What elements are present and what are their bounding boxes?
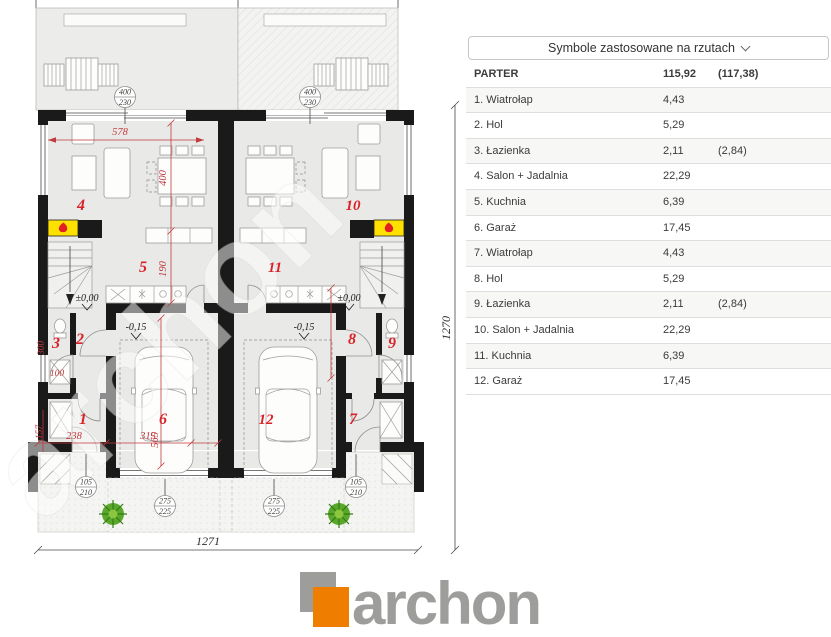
svg-text:400: 400	[119, 88, 131, 97]
room-area: 5,29	[663, 267, 718, 293]
room-name: 10. Salon + Jadalnia	[466, 318, 663, 344]
legend-row: 8. Hol 5,29	[466, 267, 831, 293]
room-area-alt: (2,84)	[718, 292, 831, 318]
legend-row: 2. Hol 5,29	[466, 113, 831, 139]
room-area: 22,29	[663, 318, 718, 344]
svg-text:578: 578	[112, 127, 129, 138]
room-area-alt	[718, 318, 831, 344]
room-name: 11. Kuchnia	[466, 344, 663, 370]
room-name: 9. Łazienka	[466, 292, 663, 318]
legend-row: 4. Salon + Jadalnia 22,29	[466, 164, 831, 190]
svg-text:157: 157	[35, 424, 45, 440]
floor-plan: archon 578 400 190 300 100 157 238 315 5…	[8, 0, 474, 565]
room-area-alt: (2,84)	[718, 139, 831, 165]
svg-text:-0,15: -0,15	[294, 322, 315, 333]
room-area-alt	[718, 369, 831, 395]
room-number-12: 12	[259, 412, 275, 428]
room-number-9: 9	[388, 335, 396, 352]
room-area: 4,43	[663, 241, 718, 267]
legend-rows: 1. Wiatrołap 4,43 2. Hol 5,29 3. Łazienk…	[466, 88, 831, 395]
area-legend: Symbole zastosowane na rzutach PARTER 11…	[466, 0, 831, 420]
chevron-down-icon	[741, 42, 751, 52]
room-number-4: 4	[76, 197, 85, 214]
svg-text:190: 190	[158, 260, 169, 277]
room-name: 5. Kuchnia	[466, 190, 663, 216]
room-area: 5,29	[663, 113, 718, 139]
room-area: 22,29	[663, 164, 718, 190]
logo-wordmark: archon	[352, 574, 540, 634]
svg-text:400: 400	[304, 88, 316, 97]
room-name: 2. Hol	[466, 113, 663, 139]
legend-row: 6. Garaż 17,45	[466, 216, 831, 242]
room-area: 17,45	[663, 216, 718, 242]
svg-text:400: 400	[158, 169, 169, 186]
room-area-alt	[718, 164, 831, 190]
room-area: 6,39	[663, 344, 718, 370]
room-area-alt	[718, 344, 831, 370]
room-area-alt	[718, 190, 831, 216]
room-area: 2,11	[663, 139, 718, 165]
svg-text:210: 210	[80, 488, 92, 497]
legend-row: 12. Garaż 17,45	[466, 369, 831, 395]
floor-area: 115,92	[663, 62, 718, 88]
svg-text:±0,00: ±0,00	[76, 293, 99, 304]
svg-text:275: 275	[159, 497, 171, 506]
room-number-5: 5	[139, 259, 147, 276]
svg-text:225: 225	[268, 507, 280, 516]
svg-text:230: 230	[119, 98, 131, 107]
room-area-alt	[718, 88, 831, 114]
legend-row: 9. Łazienka 2,11 (2,84)	[466, 292, 831, 318]
svg-text:565: 565	[150, 432, 161, 448]
room-area-alt	[718, 241, 831, 267]
legend-row: 1. Wiatrołap 4,43	[466, 88, 831, 114]
symbols-dropdown-label: Symbole zastosowane na rzutach	[548, 41, 735, 55]
room-number-3: 3	[51, 335, 60, 352]
floor-plan-svg: archon 578 400 190 300 100 157 238 315 5…	[8, 0, 474, 560]
svg-text:1270: 1270	[439, 316, 453, 340]
legend-total-row: PARTER 115,92 (117,38)	[466, 62, 831, 88]
svg-text:238: 238	[66, 431, 83, 442]
room-number-2: 2	[75, 331, 84, 348]
floor-area-alt: (117,38)	[718, 62, 831, 88]
svg-text:1271: 1271	[196, 534, 220, 548]
archon-logo: archon	[300, 570, 580, 630]
legend-row: 3. Łazienka 2,11 (2,84)	[466, 139, 831, 165]
room-name: 8. Hol	[466, 267, 663, 293]
room-area: 17,45	[663, 369, 718, 395]
room-name: 3. Łazienka	[466, 139, 663, 165]
legend-rows-wrap: PARTER 115,92 (117,38) 1. Wiatrołap 4,43…	[466, 62, 831, 395]
room-area-alt	[718, 216, 831, 242]
legend-row: 10. Salon + Jadalnia 22,29	[466, 318, 831, 344]
svg-text:100: 100	[50, 369, 65, 379]
svg-text:105: 105	[350, 478, 362, 487]
room-area-alt	[718, 267, 831, 293]
room-area: 4,43	[663, 88, 718, 114]
svg-text:225: 225	[159, 507, 171, 516]
svg-text:105: 105	[80, 478, 92, 487]
room-number-6: 6	[159, 411, 167, 428]
room-name: 12. Garaż	[466, 369, 663, 395]
svg-text:210: 210	[350, 488, 362, 497]
floor-name: PARTER	[466, 62, 663, 88]
svg-text:±0,00: ±0,00	[338, 293, 361, 304]
legend-row: 7. Wiatrołap 4,43	[466, 241, 831, 267]
room-area-alt	[718, 113, 831, 139]
legend-row: 11. Kuchnia 6,39	[466, 344, 831, 370]
svg-text:-0,15: -0,15	[126, 322, 147, 333]
svg-text:230: 230	[304, 98, 316, 107]
room-name: 4. Salon + Jadalnia	[466, 164, 663, 190]
room-area: 6,39	[663, 190, 718, 216]
room-name: 6. Garaż	[466, 216, 663, 242]
svg-text:300: 300	[37, 341, 47, 357]
svg-text:275: 275	[268, 497, 280, 506]
room-name: 7. Wiatrołap	[466, 241, 663, 267]
room-number-11: 11	[268, 260, 282, 276]
room-name: 1. Wiatrołap	[466, 88, 663, 114]
room-area: 2,11	[663, 292, 718, 318]
room-number-10: 10	[346, 198, 362, 214]
room-number-8: 8	[348, 331, 356, 348]
legend-row: 5. Kuchnia 6,39	[466, 190, 831, 216]
room-number-7: 7	[349, 411, 358, 428]
logo-orange-square	[313, 587, 349, 627]
room-number-1: 1	[79, 411, 87, 428]
symbols-dropdown[interactable]: Symbole zastosowane na rzutach	[468, 36, 829, 60]
